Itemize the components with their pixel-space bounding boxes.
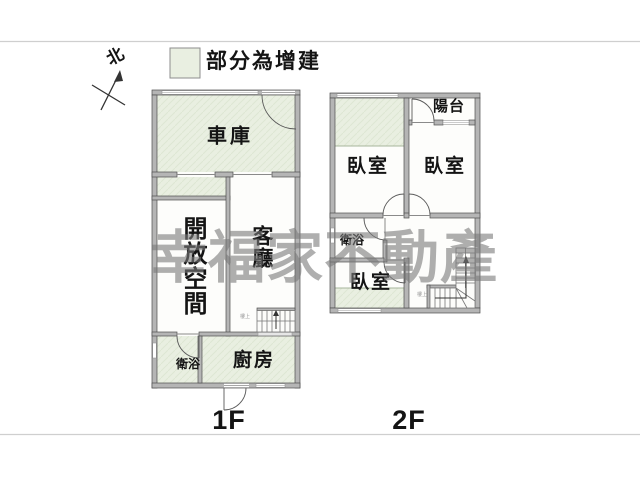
floor1-stairs bbox=[257, 310, 295, 332]
room-label-bedroom-top-left: 臥室 bbox=[347, 157, 389, 177]
north-arrow-icon bbox=[92, 70, 125, 110]
floor2-title: 2F bbox=[392, 406, 426, 434]
room-label-garage: 車庫 bbox=[207, 127, 253, 148]
agency-watermark: 幸福家不動產 bbox=[150, 212, 498, 294]
floor1-title: 1F bbox=[212, 406, 246, 434]
stair-note-1f: 樓上 bbox=[240, 315, 250, 320]
room-label-bedroom-top-right: 臥室 bbox=[424, 157, 466, 177]
room-label-kitchen: 廚房 bbox=[233, 351, 275, 371]
legend-addition-swatch bbox=[170, 48, 200, 78]
room-label-balcony: 陽台 bbox=[433, 99, 465, 115]
room-label-bathroom-1f: 衛浴 bbox=[176, 358, 200, 370]
legend-label: 部分為增建 bbox=[206, 51, 321, 73]
floorplan-page: 北 部分為增建 車庫 開放空間 客廳 衛浴 廚房 樓上 1F 臥室 臥室 陽台 … bbox=[0, 0, 640, 480]
